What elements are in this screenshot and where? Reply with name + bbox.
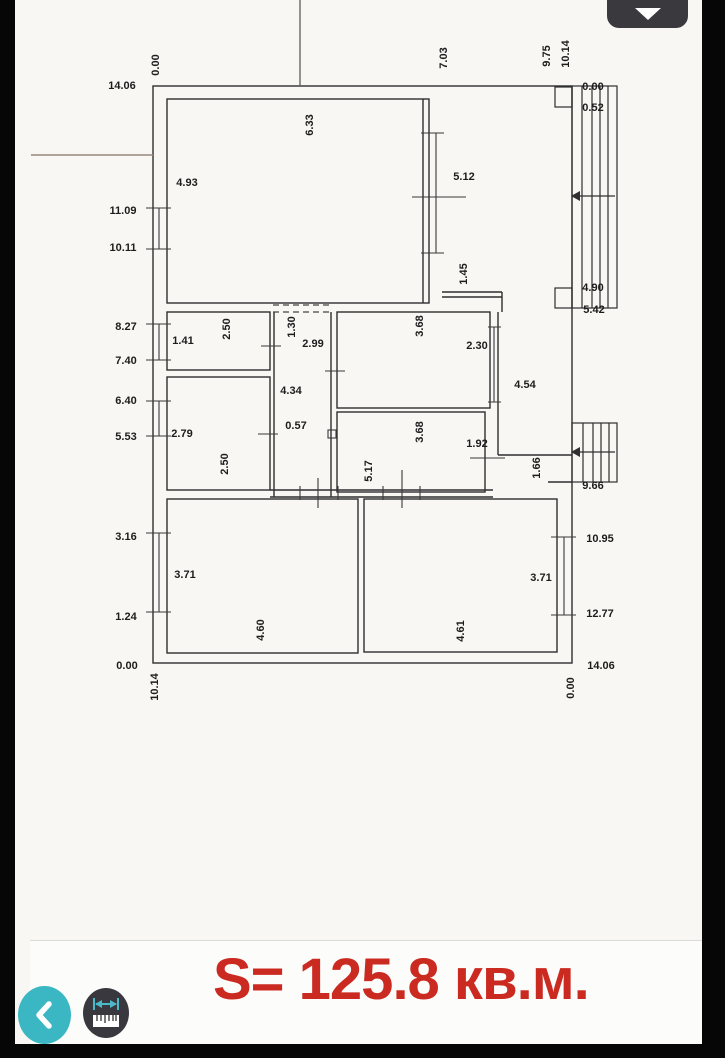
dimension-label: 2.30 xyxy=(466,340,487,352)
dimension-label: 1.30 xyxy=(286,316,298,337)
dimension-label: 1.92 xyxy=(466,438,487,450)
ruler-icon xyxy=(83,988,129,1038)
back-button[interactable] xyxy=(18,986,71,1044)
dimension-label: 0.00 xyxy=(116,660,137,672)
dimension-label: 5.12 xyxy=(453,171,474,183)
dimension-label: 0.52 xyxy=(582,102,603,114)
dimension-label: 3.68 xyxy=(414,421,426,442)
dimension-label: 8.27 xyxy=(115,321,136,333)
total-area-text: S= 125.8 кв.м. xyxy=(213,951,589,1009)
dimension-label: 7.03 xyxy=(438,47,450,68)
dimension-label: 5.53 xyxy=(115,431,136,443)
dimension-label: 2.99 xyxy=(302,338,323,350)
dimension-label: 2.50 xyxy=(219,453,231,474)
measure-tool-button[interactable] xyxy=(83,988,129,1038)
frame-strip-bottom xyxy=(0,1044,725,1058)
dimension-label: 14.06 xyxy=(108,80,136,92)
dimension-label: 3.68 xyxy=(414,315,426,336)
dimension-label: 11.09 xyxy=(110,205,137,217)
plan-labels-layer: 14.0611.0910.118.277.406.405.533.161.240… xyxy=(15,0,725,1058)
dimension-label: 5.42 xyxy=(583,304,604,316)
dimension-label: 9.75 xyxy=(541,45,553,66)
dimension-label: 1.41 xyxy=(172,335,193,347)
dimension-label: 0.00 xyxy=(582,81,603,93)
dimension-label: 5.17 xyxy=(363,460,375,481)
collapse-button[interactable] xyxy=(607,0,688,28)
dimension-label: 10.95 xyxy=(586,533,614,545)
dimension-label: 4.54 xyxy=(514,379,535,391)
dimension-label: 2.50 xyxy=(221,318,233,339)
app-screen: 14.0611.0910.118.277.406.405.533.161.240… xyxy=(0,0,725,1058)
dimension-label: 4.60 xyxy=(255,619,267,640)
dimension-label: 10.14 xyxy=(149,673,161,701)
dimension-label: 1.45 xyxy=(458,263,470,284)
dimension-label: 0.57 xyxy=(285,420,306,432)
dimension-label: 12.77 xyxy=(586,608,614,620)
dimension-label: 1.66 xyxy=(531,457,543,478)
dimension-label: 3.16 xyxy=(115,531,136,543)
dimension-label: 6.33 xyxy=(304,114,316,135)
dimension-label: 0.00 xyxy=(565,677,577,698)
dimension-label: 4.34 xyxy=(280,385,301,397)
dimension-label: 9.66 xyxy=(582,480,603,492)
dimension-label: 14.06 xyxy=(587,660,615,672)
dimension-label: 10.14 xyxy=(560,40,572,68)
dimension-label: 0.00 xyxy=(150,54,162,75)
plan-viewport[interactable]: 14.0611.0910.118.277.406.405.533.161.240… xyxy=(15,0,702,1044)
dimension-label: 3.71 xyxy=(174,569,195,581)
dimension-label: 4.93 xyxy=(176,177,197,189)
dimension-label: 6.40 xyxy=(115,395,136,407)
dimension-label: 4.90 xyxy=(582,282,603,294)
chevron-down-icon xyxy=(635,8,661,20)
dimension-label: 7.40 xyxy=(115,355,136,367)
dimension-label: 3.71 xyxy=(530,572,551,584)
dimension-label: 2.79 xyxy=(171,428,192,440)
frame-strip-right xyxy=(702,0,725,1058)
frame-strip-left xyxy=(0,0,15,1058)
chevron-left-icon xyxy=(18,986,71,1044)
dimension-label: 4.61 xyxy=(455,620,467,641)
dimension-label: 1.24 xyxy=(115,611,136,623)
dimension-label: 10.11 xyxy=(110,242,137,254)
